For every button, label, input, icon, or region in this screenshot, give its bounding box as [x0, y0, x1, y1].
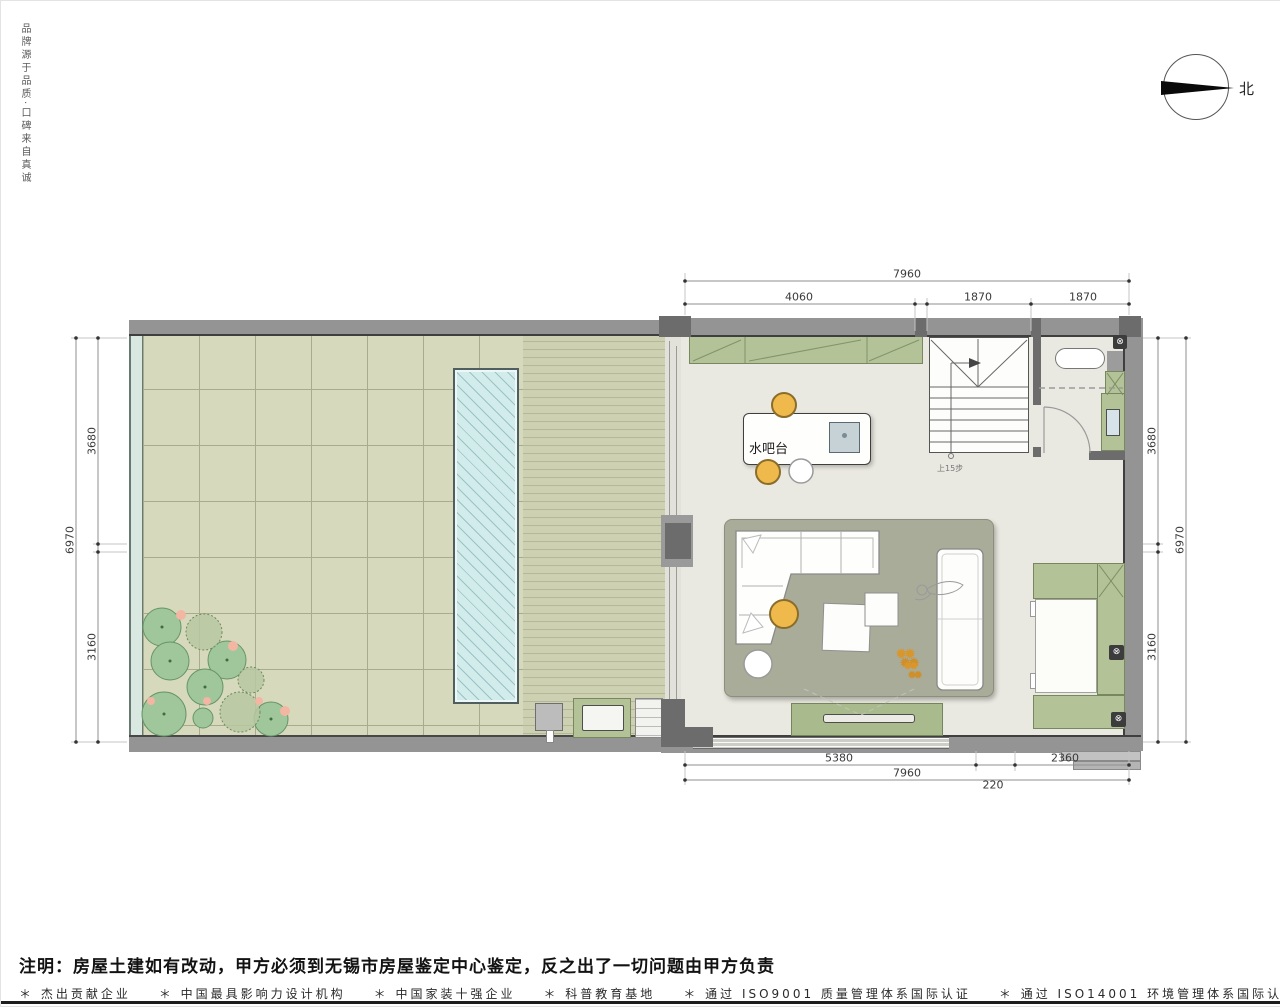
water-bar-label: 水吧台 [749, 438, 788, 457]
north-wall-pier-east [1031, 318, 1041, 337]
bottom-rule [1, 1001, 1280, 1004]
floor-drain-icon: ⊗ [1113, 335, 1127, 349]
dim-top-seg-1: 4060 [785, 291, 813, 304]
wall-outlet-icon-2: ⊗ [1111, 712, 1126, 727]
equipment-valve [546, 730, 554, 743]
stair-direction-label: 上15步 [937, 463, 963, 474]
footer-item-1: ＊ 杰出贡献企业 [19, 985, 131, 1002]
equipment-box [582, 705, 624, 731]
bathroom-south-wall [1089, 451, 1125, 460]
dim-bottom-seg-3: 2360 [1051, 752, 1079, 765]
living-room-rug [724, 519, 994, 697]
bar-faucet [842, 433, 847, 438]
dim-left-seg-2: 3160 [86, 633, 99, 661]
north-wall [661, 318, 1141, 337]
dim-left-overall: 6970 [64, 526, 77, 554]
north-wall-pier-mid [915, 318, 927, 337]
north-cabinet [689, 336, 923, 364]
gold-plant-ornament-2: ✹✹ [903, 659, 915, 673]
exterior-step-2 [1073, 761, 1141, 770]
footer-item-2: ＊ 中国最具影响力设计机构 [159, 985, 346, 1002]
footer-item-3: ＊ 中国家装十强企业 [374, 985, 516, 1002]
east-wall-corner [1119, 316, 1141, 337]
outdoor-equipment-unit [535, 703, 563, 731]
south-window [693, 737, 949, 749]
footer-item-5: ＊ 通过 ISO9001 质量管理体系国际认证 [683, 985, 971, 1002]
room-door-jamb-1 [1030, 601, 1036, 617]
compass-circle [1163, 54, 1229, 120]
staircase [929, 337, 1029, 453]
dim-top-seg-2: 1870 [964, 291, 992, 304]
toilet [1055, 348, 1105, 369]
dim-right-seg-1: 3680 [1146, 427, 1159, 455]
bathroom-west-wall-return [1033, 447, 1041, 457]
dim-top-seg-3: 1870 [1069, 291, 1097, 304]
dim-bottom-overall: 7960 [893, 767, 921, 780]
disclaimer-note: 注明：房屋土建如有改动，甲方必须到无锡市房屋鉴定中心鉴定，反之出了一切问题由甲方… [19, 952, 775, 977]
terrace-glass-railing [129, 321, 143, 749]
footer-item-6: ＊ 通过 ISO14001 环境管理体系国际认证 [999, 985, 1280, 1002]
bathroom-sink [1106, 409, 1120, 436]
toilet-tank [1107, 351, 1123, 371]
room-door-jamb-2 [1030, 673, 1036, 689]
north-label: 北 [1239, 78, 1254, 99]
dim-bottom-seg-1: 5380 [825, 752, 853, 765]
north-wall-pier-west [659, 316, 691, 337]
room-bed-mat [1035, 599, 1097, 693]
east-wall [1123, 318, 1143, 751]
certification-footer: ＊ 杰出贡献企业 ＊ 中国最具影响力设计机构 ＊ 中国家装十强企业 ＊ 科普教育… [19, 985, 1269, 1002]
bathroom-west-wall [1033, 337, 1041, 405]
louver-panel [635, 698, 663, 738]
dim-bottom-seg-2: 220 [983, 779, 1004, 792]
room-cabinet-right [1097, 563, 1125, 695]
dim-right-seg-2: 3160 [1146, 633, 1159, 661]
floor-plan-sheet: 品牌源于品质·口碑来自真诚 北 [0, 0, 1280, 1007]
terrace-wood-deck [523, 333, 665, 736]
west-corner-column-b [661, 727, 713, 747]
compass-arrow-icon [1, 1, 1280, 161]
brand-slogan-vertical: 品牌源于品质·口碑来自真诚 [17, 23, 32, 185]
terrace-north-wall [129, 320, 681, 336]
west-column [665, 523, 691, 559]
lap-pool [453, 368, 519, 704]
dim-right-overall: 6970 [1174, 526, 1187, 554]
footer-item-4: ＊ 科普教育基地 [543, 985, 655, 1002]
dim-left-seg-1: 3680 [86, 427, 99, 455]
wall-outlet-icon-1: ⊗ [1109, 645, 1124, 660]
dim-top-overall: 7960 [893, 268, 921, 281]
tv-screen [823, 714, 915, 723]
